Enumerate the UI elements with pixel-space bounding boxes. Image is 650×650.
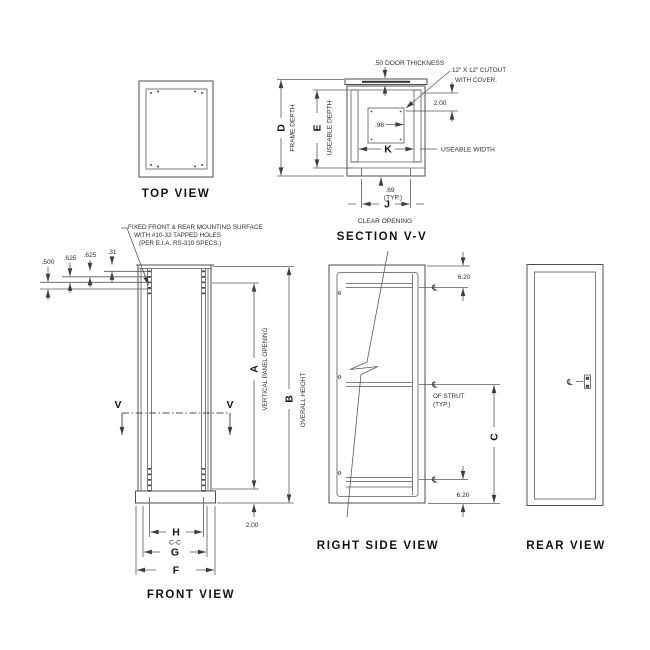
clear-opening-label: CLEAR OPENING	[358, 218, 412, 225]
dim-letter-f: F	[173, 565, 180, 577]
dim-bottom-offset: 2.00	[246, 504, 259, 529]
dim-letter-d: D	[276, 124, 288, 132]
centerline-symbol-bottom: ℄	[431, 476, 438, 486]
dim-useable-width: K USEABLE WIDTH	[359, 144, 495, 156]
rear-view-title: REAR VIEW	[526, 540, 606, 552]
dim-620-top-value: 6.20	[458, 274, 471, 281]
mounting-note-line1: FIXED FRONT & REAR MOUNTING SURFACE	[128, 224, 263, 231]
dim-letter-j: J	[384, 199, 390, 211]
right-side-view: ℄ ℄ ℄ OF STRUT (TYP.) 6.20 C 6.20 RIGHT …	[317, 251, 501, 552]
rail-hole-marks	[148, 271, 205, 492]
strut-note-line1: OF STRUT	[433, 393, 465, 400]
cc-label: C-C	[169, 540, 181, 547]
strut-centerlines: ℄ ℄ ℄ OF STRUT (TYP.)	[419, 284, 500, 486]
dim-625b: .625	[84, 252, 97, 259]
section-v-v-view: D FRAME DEPTH E USEABLE DEPTH .50 DOOR T…	[276, 60, 507, 243]
section-cutting-plane: V V	[114, 399, 233, 435]
engineering-drawing-sheet: TOP VIEW D FRAME DEPTH	[0, 0, 650, 650]
centerline-symbol-rear: ℄	[566, 378, 573, 388]
top-view-title: TOP VIEW	[142, 188, 211, 200]
side-hole-marks	[338, 292, 341, 475]
section-view-title: SECTION V-V	[337, 231, 427, 243]
dim-625a: .625	[64, 255, 77, 262]
dim-letter-b: B	[284, 395, 296, 403]
centerline-symbol-mid: ℄	[431, 381, 438, 391]
dim-2-00: 2.00	[434, 100, 447, 107]
dim-letter-a: A	[249, 365, 261, 373]
enclosure-dimension-drawing: TOP VIEW D FRAME DEPTH	[0, 0, 650, 650]
dim-69-value: .69	[385, 187, 394, 194]
dim-200-front: 2.00	[246, 522, 259, 529]
door-thickness-note: .50 DOOR THICKNESS	[374, 60, 445, 67]
dim-letter-g: G	[171, 547, 179, 559]
dim-overall-height: B OVERALL HEIGHT	[213, 267, 307, 504]
section-arrow-letter-right: V	[226, 399, 233, 411]
cutout-note-line2: WITH COVER.	[455, 77, 497, 84]
dim-hole-spacing: .500 .625 .625 .31	[40, 249, 152, 300]
front-view: FIXED FRONT & REAR MOUNTING SURFACE WITH…	[40, 224, 307, 601]
dim-bottom-widths: H C-C G F	[136, 497, 215, 577]
cutout-square	[368, 108, 404, 143]
dim-98: .98	[375, 122, 404, 129]
top-view: TOP VIEW	[139, 81, 213, 200]
top-view-corner-marks	[150, 91, 203, 168]
dim-letter-k: K	[384, 144, 392, 156]
dim-useable-depth: E USEABLE DEPTH	[312, 90, 350, 168]
dim-vertical-panel-opening: A VERTICAL PANEL OPENING	[212, 283, 269, 489]
overall-height-label: OVERALL HEIGHT	[300, 373, 307, 428]
dim-letter-h: H	[172, 527, 180, 539]
mounting-note-line3: (PER E.I.A. RS-310 SPECS.)	[139, 240, 221, 247]
dim-letter-c: C	[489, 433, 501, 441]
useable-width-label: USEABLE WIDTH	[441, 147, 495, 154]
dim-clear-opening: J CLEAR OPENING	[348, 179, 424, 225]
dim-620-top: 6.20	[427, 252, 471, 301]
dim-door-thickness: .50 DOOR THICKNESS	[374, 60, 445, 96]
dim-98-value: .98	[375, 122, 384, 129]
section-arrow-letter-left: V	[114, 399, 121, 411]
cutout-note-line1: 12" X 12" CUTOUT	[452, 67, 506, 74]
useable-depth-label: USEABLE DEPTH	[326, 100, 333, 155]
dim-620-bottom: 6.20	[457, 466, 470, 517]
dim-620-bottom-value: 6.20	[457, 492, 470, 499]
mounting-note: FIXED FRONT & REAR MOUNTING SURFACE WITH…	[121, 224, 263, 285]
centerline-symbol-top: ℄	[431, 284, 438, 294]
left-rail	[351, 90, 358, 162]
strut-lines	[346, 284, 413, 488]
dim-500: .500	[42, 259, 55, 266]
rear-latch: ℄	[566, 375, 591, 389]
strut-note-line2: (TYP.)	[433, 402, 450, 409]
rear-view: ℄ REAR VIEW	[526, 265, 606, 553]
dim-frame-depth: D FRAME DEPTH	[276, 80, 344, 177]
front-view-title: FRONT VIEW	[147, 589, 235, 601]
dim-letter-e: E	[312, 124, 324, 131]
mounting-note-line2: WITH #10-32 TAPPED HOLES	[134, 232, 221, 239]
right-side-view-title: RIGHT SIDE VIEW	[317, 540, 439, 552]
vertical-panel-opening-label: VERTICAL PANEL OPENING	[262, 327, 269, 410]
dim-31: .31	[107, 249, 116, 256]
frame-depth-label: FRAME DEPTH	[289, 104, 296, 151]
